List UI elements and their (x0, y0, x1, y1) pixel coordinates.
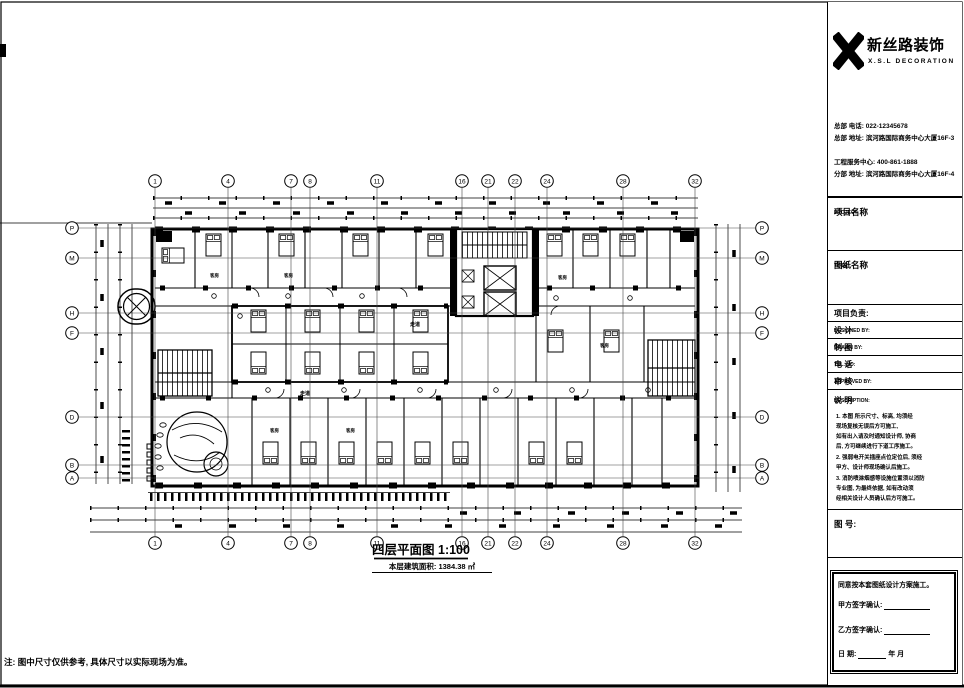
grid-bubble-label: A (70, 475, 75, 482)
corridor-label: 走道 (409, 321, 420, 328)
row-label: 项目负责: (834, 308, 869, 319)
grid-bubble-label: 28 (619, 178, 627, 185)
grid-bubble-label: 7 (289, 540, 293, 547)
note-line: 后, 方可继续进行下道工序施工。 (836, 442, 958, 450)
sheet-name-section: 图纸名称 TITLE: (828, 250, 962, 305)
grid-bubble-label: B (70, 462, 74, 469)
grid-bubble-label: 28 (619, 540, 627, 547)
row-tel: 电 话 TEL. NO: (828, 355, 962, 373)
plan-title: 四层平面图 1:100 (372, 543, 470, 557)
contact-phone: 总部 电话: 022-12345678 (834, 120, 960, 130)
party-a-signature-line (884, 601, 930, 610)
room-label: 客房 (600, 342, 609, 349)
corridor-label: 走道 (299, 390, 310, 397)
page-frame (0, 2, 964, 686)
drawing-disclaimer-note: 注: 图中尺寸仅供参考, 具体尺寸以实际现场为准。 (4, 656, 192, 668)
note-line: 如有出入请及时通知设计师, 协商 (836, 432, 958, 440)
grid-bubble-label: 1 (153, 540, 157, 547)
party-a-line: 甲方签字确认: (838, 600, 930, 610)
room-label: 客房 (210, 272, 219, 279)
note-line: 3. 消防喷淋烟感等设施位置须以消防 (836, 474, 958, 482)
row-designed-by: 设 计 DESIGNED BY: (828, 321, 962, 339)
grid-bubble-label: 7 (289, 178, 293, 185)
note-line: 现场复核无误后方可施工, (836, 422, 958, 430)
date-label: 日 期: (838, 651, 856, 658)
right-staircase (648, 340, 695, 396)
grid-bubble-label: 16 (458, 178, 466, 185)
sheet-no-label: 图 号: (834, 518, 856, 530)
grid-bubble-label: 1 (153, 178, 157, 185)
grid-bubble-label: F (760, 330, 764, 337)
grid-bubble-label: 8 (308, 540, 312, 547)
drawing-labels: 走道 走道 客房 客房 客房 客房 客房 客房 四层平面图 1:100 本层建筑… (210, 272, 609, 573)
note-line: 经相关设计人员确认后方可施工。 (836, 494, 958, 502)
grid-bubble-label: D (70, 414, 75, 421)
row-project-lead: 项目负责: (828, 304, 962, 322)
party-b-label: 乙方签字确认: (838, 627, 882, 634)
note-line: 甲方、设计师现场确认后施工。 (836, 463, 958, 471)
desc-label: 说 明 (834, 395, 852, 406)
service-hotline: 工程服务中心: 400-861-1888 (834, 156, 960, 166)
date-fill-line (858, 650, 886, 659)
grid-bubble-label: P (70, 225, 74, 232)
grid-bubble-label: 32 (691, 540, 699, 547)
grid-bubble-label: D (760, 414, 765, 421)
row-label: 审 核 (834, 376, 852, 387)
grid-bubble-label: A (760, 475, 765, 482)
contact-address: 总部 地址: 滨河路国际商务中心大厦16F-3 (834, 132, 960, 142)
grid-bubble-label: 21 (484, 540, 492, 547)
party-b-line: 乙方签字确认: (838, 625, 930, 635)
confirm-statement: 同意按本套图纸设计方案施工。 (838, 579, 933, 589)
party-a-label: 甲方签字确认: (838, 602, 882, 609)
lounge-area (147, 412, 228, 481)
branch-address: 分部 地址: 滨河路国际商务中心大厦16F-4 (834, 168, 960, 178)
bathroom-fixtures (212, 294, 651, 393)
grid-bubble-label: 11 (374, 178, 381, 185)
grid-bubble-label: 24 (543, 178, 551, 185)
project-name-section: 项目名称 PROJECT: (828, 196, 962, 252)
company-name-en: X.S.L DECORATION (868, 58, 961, 65)
sheet-number-section: 图 号: (828, 509, 962, 558)
row-label: 电 话 (834, 359, 852, 370)
row-approved-by: 审 核 APPROVED BY: (828, 372, 962, 390)
note-line: 2. 强弱电开关插座点位定位后, 须经 (836, 453, 958, 461)
left-staircase (158, 350, 212, 396)
party-b-signature-line (884, 626, 930, 635)
date-suffix: 年 月 (888, 651, 904, 658)
grid-bubble-label: P (760, 225, 764, 232)
floor-plan-drawing: 114477881111161621212222242428283232PPMM… (0, 0, 964, 688)
note-line: 1. 本图 所示尺寸、标高, 均须经 (836, 412, 958, 420)
room-label: 客房 (346, 427, 355, 434)
title-block-panel: 新丝路装饰 X.S.L DECORATION 总部 电话: 022-123456… (827, 2, 962, 685)
room-label: 客房 (284, 272, 293, 279)
grid-bubble-label: 22 (511, 540, 519, 547)
grid-bubble-label: 8 (308, 178, 312, 185)
room-label: 客房 (270, 427, 279, 434)
signature-box: 同意按本套图纸设计方案施工。 甲方签字确认: 乙方签字确认: 日 期: 年 月 (832, 572, 956, 672)
company-name: 新丝路装饰 (867, 34, 961, 55)
description-section: 说 明 DESCRIPTION: 1. 本图 所示尺寸、标高, 均须经 现场复核… (828, 389, 962, 510)
room-label: 客房 (558, 274, 567, 281)
grid-bubble-label: H (760, 310, 765, 317)
row-drawn-by: 制 图 DRAWN BY: (828, 338, 962, 356)
project-label: 项目名称 (834, 206, 868, 218)
sheet-label: 图纸名称 (834, 259, 868, 271)
left-elevator (118, 289, 155, 324)
grid-bubble-label: 24 (543, 540, 551, 547)
xsl-logo-icon (833, 32, 864, 70)
grid-bubble-label: 21 (484, 178, 492, 185)
date-line: 日 期: 年 月 (838, 649, 904, 659)
grid-bubble-label: B (760, 462, 764, 469)
row-label: 制 图 (834, 342, 852, 353)
grid-bubble-label: 4 (226, 178, 230, 185)
grid-bubble-label: 32 (691, 178, 699, 185)
row-label: 设 计 (834, 325, 852, 336)
core-stairs-elevators (450, 229, 539, 316)
grid-bubble-label: 4 (226, 540, 230, 547)
grid-bubble-label: 22 (511, 178, 519, 185)
note-line: 专业图, 为最终依据, 如有改动须 (836, 484, 958, 492)
grid-bubble-label: M (69, 255, 74, 262)
bed-symbols (162, 234, 635, 464)
plan-subtitle: 本层建筑面积: 1384.38 ㎡ (388, 561, 476, 571)
grid-bubble-label: M (759, 255, 764, 262)
grid-bubble-label: H (70, 310, 75, 317)
confirmation-section: 同意按本套图纸设计方案施工。 甲方签字确认: 乙方签字确认: 日 期: 年 月 (828, 557, 962, 686)
grid-bubble-label: F (70, 330, 74, 337)
